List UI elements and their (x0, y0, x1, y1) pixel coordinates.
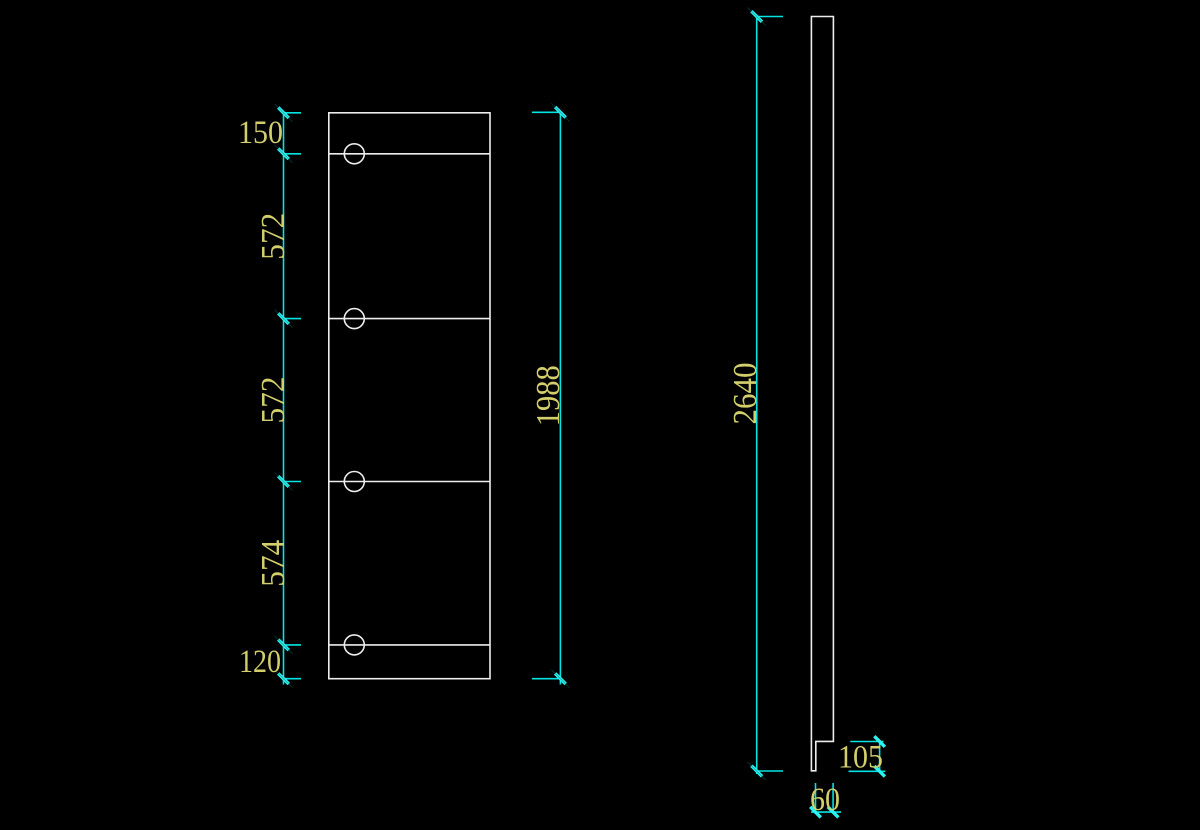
svg-text:120: 120 (239, 644, 281, 680)
svg-text:572: 572 (255, 213, 292, 260)
svg-text:574: 574 (255, 540, 292, 587)
svg-text:1988: 1988 (530, 365, 567, 426)
svg-text:150: 150 (238, 115, 283, 151)
svg-text:2640: 2640 (727, 363, 764, 425)
svg-text:60: 60 (810, 782, 840, 818)
svg-text:572: 572 (255, 377, 292, 424)
svg-text:105: 105 (838, 740, 883, 776)
